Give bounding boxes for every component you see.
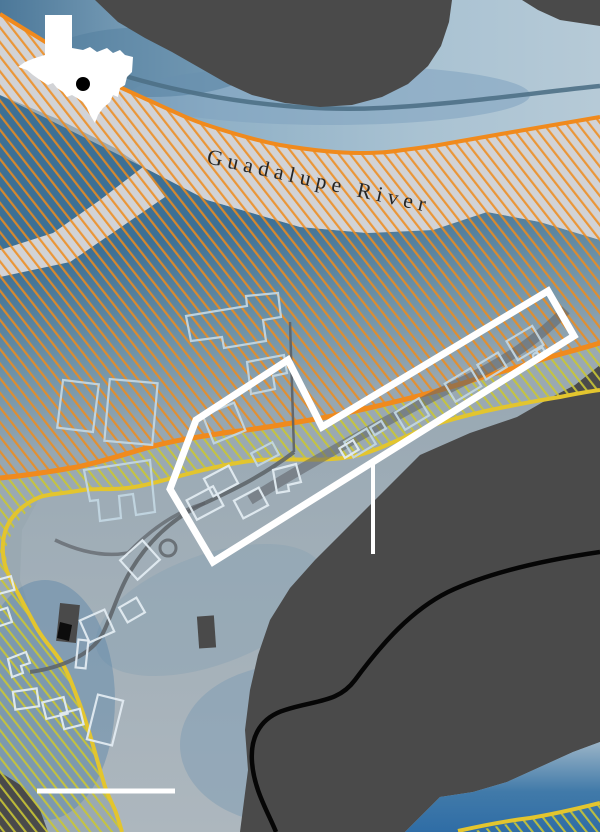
location-dot-icon: [76, 77, 90, 91]
flood-map: Guadalupe River: [0, 0, 600, 832]
flood-map-svg: Guadalupe River: [0, 0, 600, 832]
